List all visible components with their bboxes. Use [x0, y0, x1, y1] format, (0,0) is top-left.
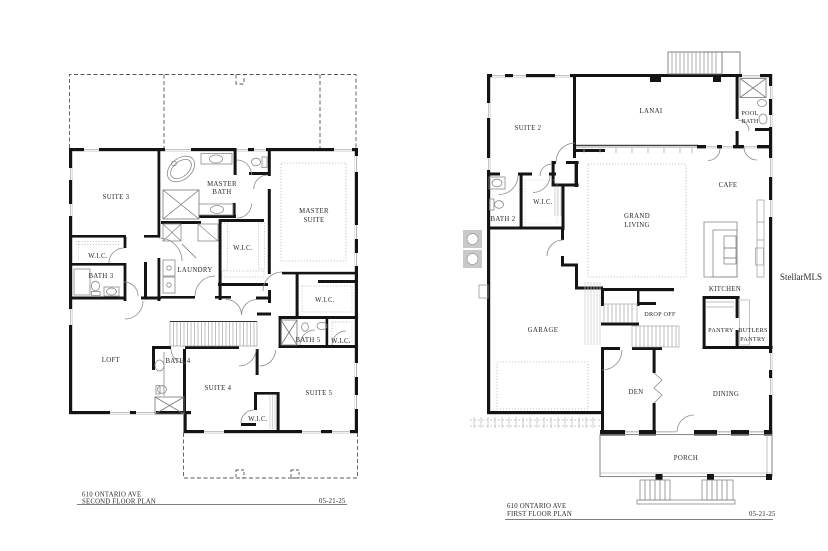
svg-text:BATH 5: BATH 5: [296, 337, 321, 344]
svg-text:610 ONTARIO AVE: 610 ONTARIO AVE: [507, 503, 566, 510]
svg-text:DROP OFF: DROP OFF: [644, 311, 676, 318]
svg-text:W.I.C.: W.I.C.: [88, 253, 108, 260]
svg-text:SUITE: SUITE: [303, 217, 324, 224]
svg-text:KITCHEN: KITCHEN: [709, 286, 741, 293]
svg-text:FIRST FLOOR PLAN: FIRST FLOOR PLAN: [507, 511, 572, 518]
svg-text:LOFT: LOFT: [102, 357, 121, 364]
svg-text:BATH: BATH: [741, 118, 759, 125]
svg-text:MASTER: MASTER: [299, 208, 329, 215]
svg-text:DINING: DINING: [713, 391, 739, 398]
svg-text:PORCH: PORCH: [674, 455, 698, 462]
svg-text:StellarMLS: StellarMLS: [780, 272, 822, 282]
svg-text:W.I.C.: W.I.C.: [233, 245, 253, 252]
svg-text:BATH 2: BATH 2: [491, 216, 516, 223]
svg-text:W.I.C.: W.I.C.: [315, 297, 335, 304]
svg-text:MASTER: MASTER: [207, 181, 237, 188]
svg-text:LANAI: LANAI: [640, 108, 663, 115]
svg-text:PANTRY: PANTRY: [740, 336, 766, 343]
svg-text:W.I.C.: W.I.C.: [248, 416, 268, 423]
svg-text:W.I.C.: W.I.C.: [331, 338, 351, 345]
svg-text:GARAGE: GARAGE: [528, 327, 558, 334]
svg-text:05-21-25: 05-21-25: [319, 498, 346, 505]
svg-text:SUITE 2: SUITE 2: [515, 125, 542, 132]
svg-text:LAUNDRY: LAUNDRY: [177, 267, 212, 274]
svg-text:W.I.C.: W.I.C.: [533, 199, 553, 206]
svg-text:CAFE: CAFE: [719, 182, 738, 189]
svg-text:POOL: POOL: [741, 110, 758, 117]
svg-text:PANTRY: PANTRY: [708, 327, 734, 334]
svg-text:SUITE 3: SUITE 3: [103, 194, 130, 201]
svg-text:BATH 4: BATH 4: [166, 358, 191, 365]
svg-text:DEN: DEN: [628, 389, 643, 396]
svg-text:LIVING: LIVING: [624, 222, 650, 229]
svg-text:BATH: BATH: [212, 189, 231, 196]
svg-text:BUTLERS: BUTLERS: [738, 327, 768, 334]
svg-text:BATH 3: BATH 3: [89, 273, 114, 280]
svg-text:SUITE 4: SUITE 4: [205, 385, 232, 392]
svg-text:GRAND: GRAND: [624, 213, 650, 220]
svg-text:SUITE 5: SUITE 5: [306, 390, 333, 397]
svg-text:05-21-25: 05-21-25: [749, 511, 776, 518]
svg-text:610 ONTARIO AVE: 610 ONTARIO AVE: [82, 492, 141, 499]
